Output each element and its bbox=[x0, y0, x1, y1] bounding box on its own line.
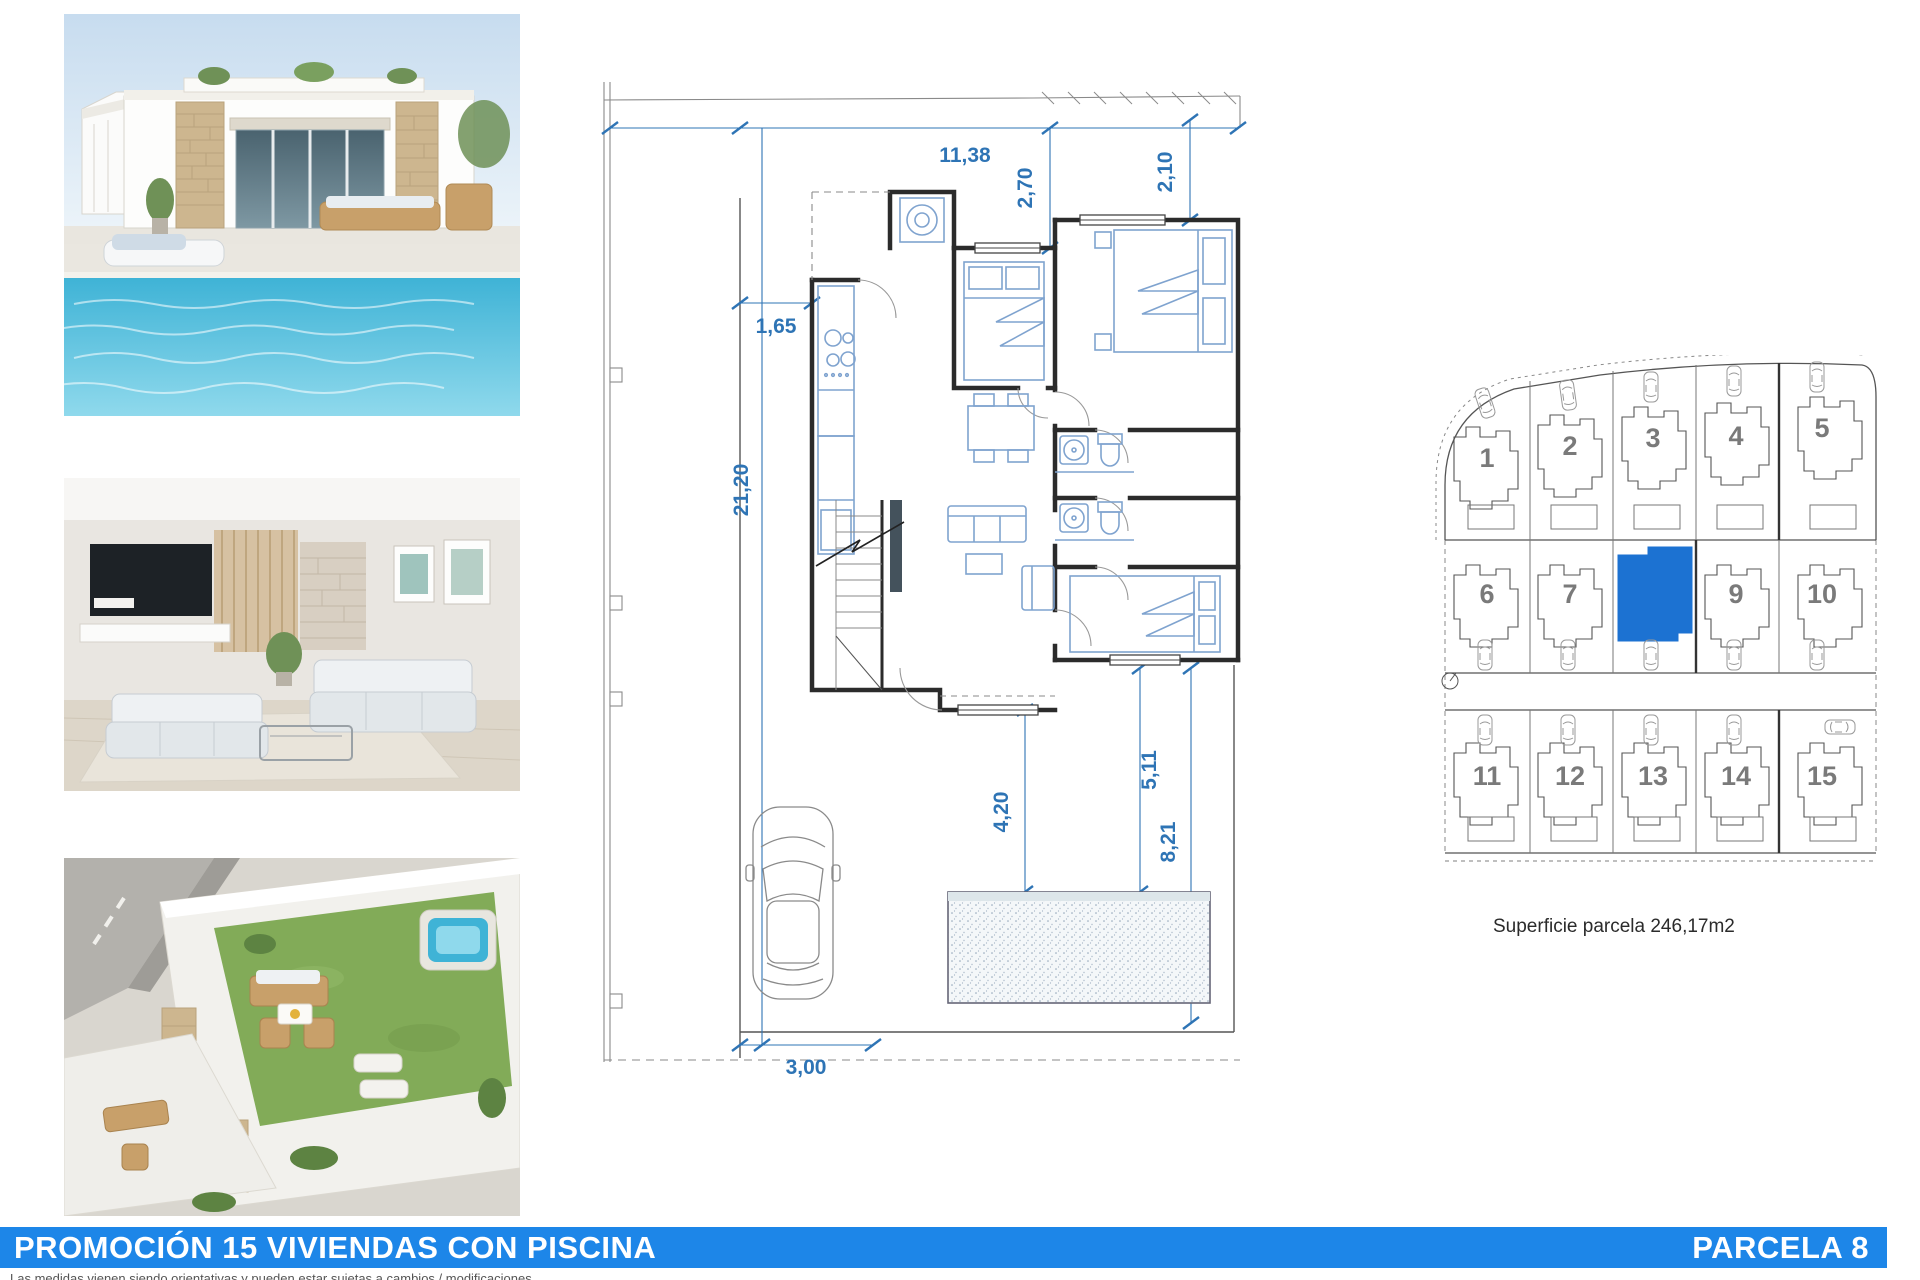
bathroom-icon bbox=[1055, 434, 1134, 472]
jacuzzi bbox=[420, 910, 496, 970]
door-arcs bbox=[858, 280, 1128, 710]
stone-pillar bbox=[176, 102, 224, 228]
plot-number: 2 bbox=[1562, 431, 1577, 461]
sofa bbox=[106, 694, 268, 758]
dim-driveway: 3,00 bbox=[786, 1056, 827, 1079]
plot-number: 10 bbox=[1807, 579, 1837, 609]
plot-number: 3 bbox=[1645, 423, 1660, 453]
plot-number: 14 bbox=[1721, 761, 1751, 791]
bed-icon bbox=[1095, 230, 1232, 352]
parcel-surface-caption: Superficie parcela 246,17m2 bbox=[1493, 916, 1735, 938]
pool bbox=[948, 892, 1210, 1003]
brochure-page: 11,38 2,70 2,10 1,65 21,20 4,20 5,11 8,2… bbox=[0, 0, 1920, 1280]
sofa bbox=[310, 660, 476, 732]
plot-number: 4 bbox=[1728, 421, 1743, 451]
sofa-icon bbox=[948, 506, 1054, 610]
bathroom-icon bbox=[1055, 502, 1134, 540]
plot-number: 12 bbox=[1555, 761, 1585, 791]
dim-depth: 21,20 bbox=[730, 464, 753, 517]
villa-pool-illustration bbox=[64, 14, 520, 416]
plot-number: 11 bbox=[1473, 761, 1502, 791]
tv-unit-icon bbox=[890, 500, 902, 592]
plot-number: 9 bbox=[1728, 579, 1743, 609]
dim-front-b: 2,10 bbox=[1154, 152, 1177, 193]
plot-number: 6 bbox=[1479, 579, 1494, 609]
plot-number: 13 bbox=[1638, 761, 1668, 791]
north-arrow-icon bbox=[1442, 673, 1458, 689]
dim-terrace: 4,20 bbox=[990, 792, 1013, 833]
highlighted-plot-8 bbox=[1618, 547, 1692, 641]
dining-table-icon bbox=[968, 394, 1034, 462]
bed-icon bbox=[964, 262, 1044, 380]
bed-icon bbox=[1070, 576, 1220, 652]
photo-villa-pool bbox=[64, 14, 520, 416]
disclaimer-text: Las medidas vienen siendo orientativas y… bbox=[10, 1271, 532, 1280]
house-walls bbox=[812, 192, 1238, 710]
parcel-label: PARCELA 8 bbox=[1692, 1230, 1887, 1266]
car-icon bbox=[746, 807, 840, 999]
photo-living-room bbox=[64, 478, 520, 791]
footer-bar: PROMOCIÓN 15 VIVIENDAS CON PISCINA PARCE… bbox=[0, 1227, 1887, 1268]
plot-number: 7 bbox=[1562, 579, 1577, 609]
plot-number: 15 bbox=[1807, 761, 1837, 791]
rooftop-illustration bbox=[64, 858, 520, 1216]
dim-garden-a: 5,11 bbox=[1138, 750, 1161, 790]
washer-icon bbox=[900, 198, 944, 242]
dim-side: 1,65 bbox=[756, 315, 797, 338]
floor-plan-drawing: 11,38 2,70 2,10 1,65 21,20 4,20 5,11 8,2… bbox=[590, 70, 1270, 1080]
dim-garden-b: 8,21 bbox=[1157, 821, 1180, 862]
living-room-illustration bbox=[64, 478, 520, 791]
site-plan-drawing: 1 2 3 4 5 6 7 9 10 11 12 13 14 15 bbox=[1430, 355, 1890, 865]
plot-number: 5 bbox=[1814, 413, 1829, 443]
plot-number: 1 bbox=[1479, 443, 1494, 473]
promo-title: PROMOCIÓN 15 VIVIENDAS CON PISCINA bbox=[0, 1230, 656, 1266]
windows bbox=[958, 215, 1180, 715]
street-kerb bbox=[604, 82, 622, 1062]
dim-front-a: 2,70 bbox=[1014, 168, 1037, 209]
photo-rooftop-terrace bbox=[64, 858, 520, 1216]
dim-total-width: 11,38 bbox=[939, 144, 991, 167]
